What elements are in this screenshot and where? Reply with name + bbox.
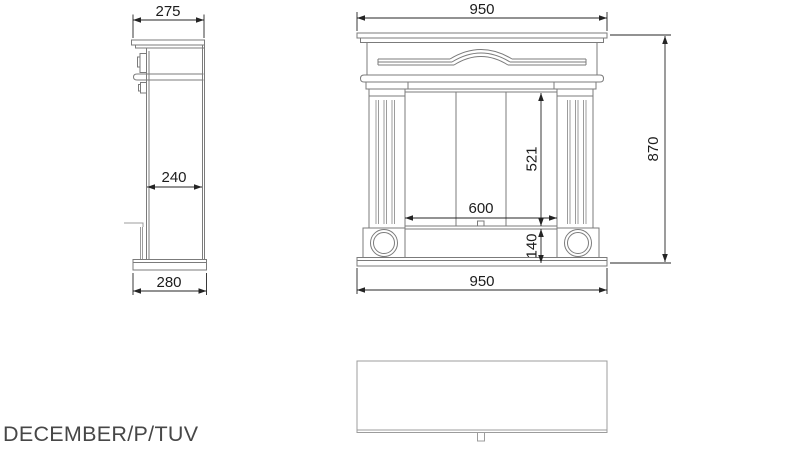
dim-opening-height: 521 xyxy=(524,93,544,226)
dim-arrow xyxy=(196,17,204,23)
side-view-outline xyxy=(124,40,207,270)
dim-base-width: 950 xyxy=(357,268,607,294)
side-view: 275 240 280 xyxy=(124,3,207,295)
rosette xyxy=(565,230,592,257)
plan-view xyxy=(357,361,607,441)
dim-arrow xyxy=(538,218,544,226)
dim-label-total-height: 870 xyxy=(645,136,662,161)
under-shelf-rail xyxy=(361,75,604,82)
dim-arrow xyxy=(133,17,141,23)
dim-label-body-depth: 240 xyxy=(161,169,186,186)
dim-label-hearth-height: 140 xyxy=(524,233,541,258)
left-pilaster xyxy=(363,82,408,258)
side-plinth xyxy=(133,260,207,271)
dim-arrow xyxy=(199,288,207,294)
dim-label-base-width: 950 xyxy=(469,273,494,290)
dim-arrow xyxy=(599,15,607,21)
dim-arrow xyxy=(357,15,365,21)
dim-hearth-height: 140 xyxy=(524,229,544,263)
technical-drawing: 275 240 280 xyxy=(0,0,800,450)
rosette-inner xyxy=(568,233,589,254)
side-molding-nub xyxy=(138,57,141,67)
mantel-shelf-step xyxy=(361,38,604,43)
fluting xyxy=(376,100,395,224)
front-view: 950 600 521 140 950 xyxy=(357,1,671,294)
side-capital-nub xyxy=(139,85,141,92)
dim-arrow xyxy=(194,184,202,190)
dim-shelf-width: 950 xyxy=(357,1,607,31)
burner-knob xyxy=(478,221,485,226)
dim-body-depth: 240 xyxy=(147,169,202,190)
dim-arrow xyxy=(662,254,668,262)
plan-center-tab xyxy=(478,433,485,442)
dim-arrow xyxy=(357,287,365,293)
arch-molding xyxy=(450,50,512,66)
rosette-inner xyxy=(374,233,395,254)
dim-base-depth: 280 xyxy=(133,273,207,295)
rosette xyxy=(371,230,398,257)
dim-shelf-depth: 275 xyxy=(133,3,204,38)
side-back-face xyxy=(203,45,205,259)
side-frieze-molding-profile xyxy=(140,54,147,73)
drawing-title: DECEMBER/P/TUV xyxy=(3,422,199,446)
capital-step xyxy=(369,89,405,96)
dim-arrow xyxy=(538,93,544,101)
base-plinth xyxy=(357,258,607,267)
side-hearth-ledge xyxy=(124,223,143,227)
right-pilaster xyxy=(554,82,599,258)
side-hearth-face xyxy=(141,227,143,259)
dim-arrow xyxy=(147,184,155,190)
dim-arrow xyxy=(133,288,141,294)
opening-header xyxy=(405,89,557,92)
plan-shelf-outline xyxy=(357,361,607,433)
dim-label-base-depth: 280 xyxy=(156,274,181,291)
dim-label-shelf-width: 950 xyxy=(469,1,494,18)
dim-opening-width: 600 xyxy=(405,200,557,221)
fluting xyxy=(568,100,587,224)
dim-arrow xyxy=(549,215,557,221)
frieze-molding-right xyxy=(508,59,586,65)
side-rail-profile xyxy=(134,74,204,80)
capital xyxy=(554,82,596,89)
dim-arrow xyxy=(662,36,668,44)
dim-total-height: 870 xyxy=(610,35,671,263)
capital xyxy=(366,82,408,89)
dim-arrow xyxy=(599,287,607,293)
side-shelf xyxy=(132,40,205,45)
mantel-shelf xyxy=(357,33,607,38)
front-view-outline xyxy=(357,33,607,266)
side-capital-profile xyxy=(141,83,147,94)
dim-label-opening-width: 600 xyxy=(468,200,493,217)
frieze-molding-left xyxy=(378,59,454,65)
drawing-sheet: 275 240 280 xyxy=(0,0,800,450)
dim-arrow xyxy=(405,215,413,221)
dim-label-opening-height: 521 xyxy=(524,146,541,171)
capital-step xyxy=(557,89,593,96)
dim-label-shelf-depth: 275 xyxy=(155,3,180,20)
